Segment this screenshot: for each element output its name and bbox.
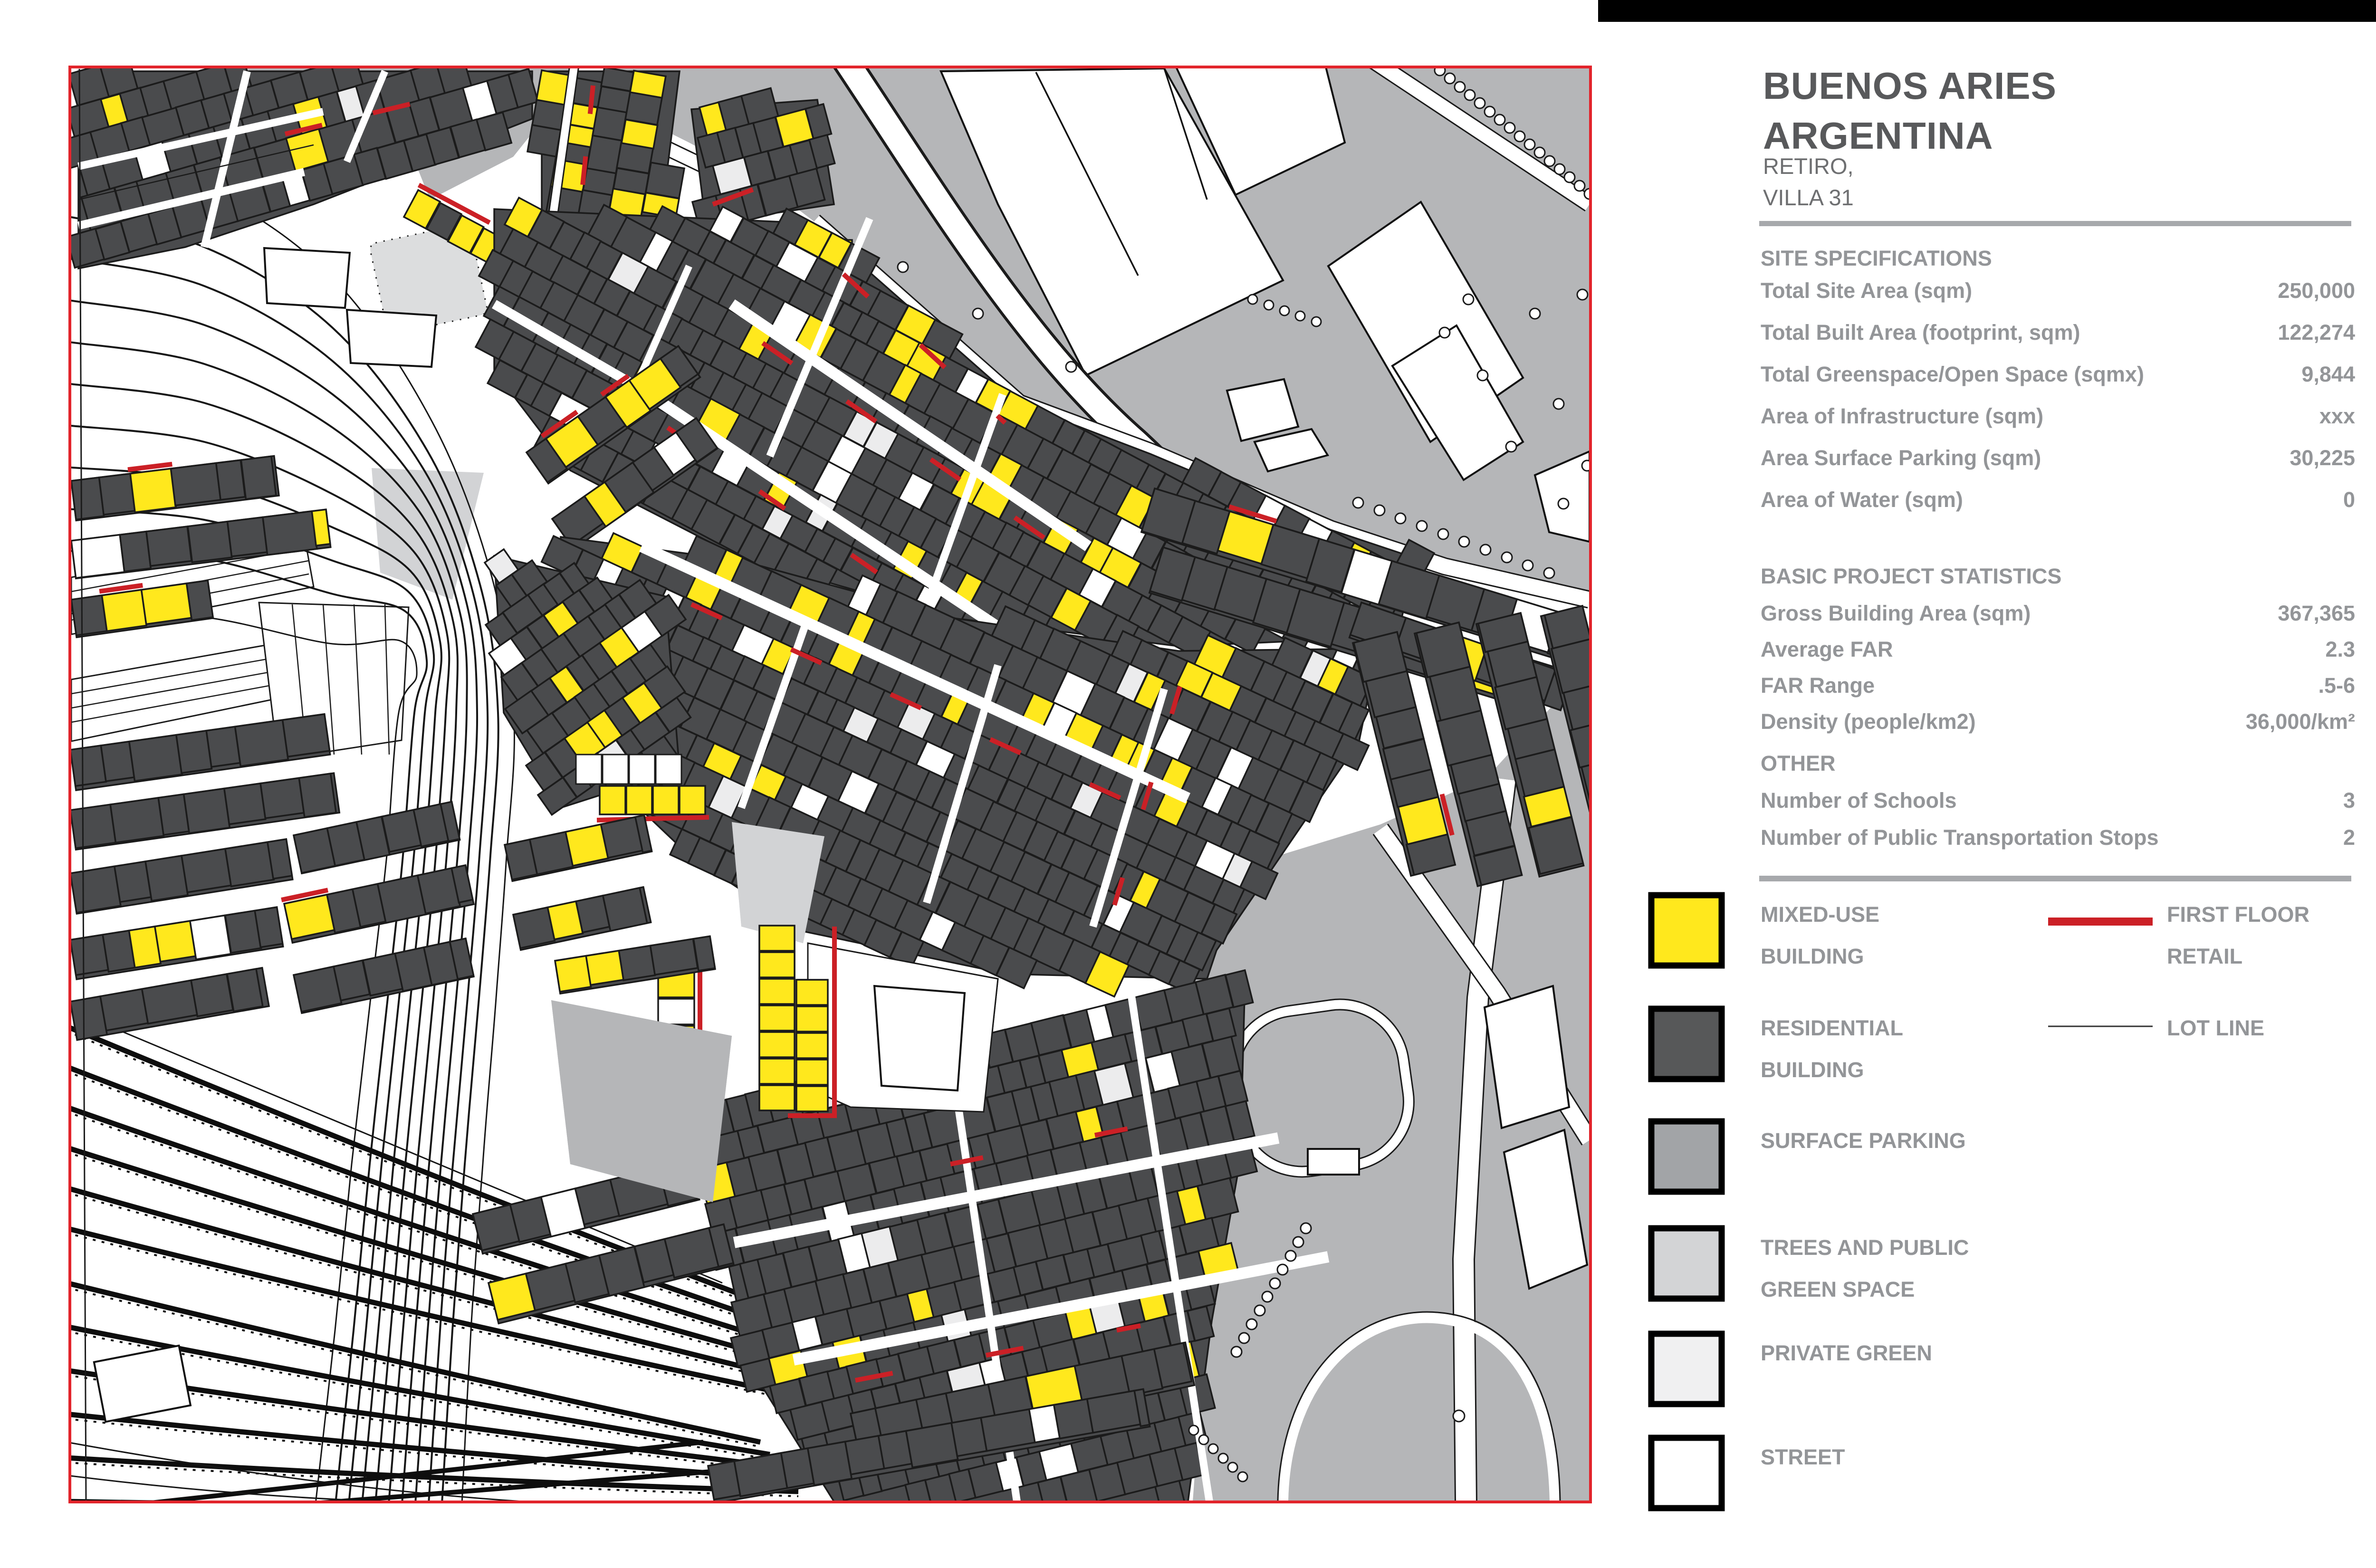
- svg-text:MIXED-USE: MIXED-USE: [1761, 902, 1879, 927]
- svg-text:0: 0: [2343, 488, 2355, 512]
- svg-text:Density (people/km2): Density (people/km2): [1761, 709, 1976, 734]
- svg-text:Total Greenspace/Open Space (s: Total Greenspace/Open Space (sqmx): [1761, 362, 2144, 386]
- svg-text:.5-6: .5-6: [2318, 673, 2355, 698]
- svg-text:367,365: 367,365: [2278, 601, 2355, 625]
- svg-text:Area Surface Parking (sqm): Area Surface Parking (sqm): [1761, 446, 2041, 470]
- svg-text:VILLA 31: VILLA 31: [1763, 185, 1854, 210]
- svg-text:xxx: xxx: [2319, 404, 2355, 428]
- svg-text:TREES AND PUBLIC: TREES AND PUBLIC: [1761, 1235, 1969, 1260]
- svg-text:Total Site Area (sqm): Total Site Area (sqm): [1761, 278, 1972, 303]
- svg-text:BUILDING: BUILDING: [1761, 1058, 1864, 1082]
- svg-text:SURFACE PARKING: SURFACE PARKING: [1761, 1128, 1966, 1153]
- svg-text:RESIDENTIAL: RESIDENTIAL: [1761, 1016, 1903, 1040]
- svg-text:122,274: 122,274: [2278, 320, 2355, 344]
- svg-text:Area of Infrastructure (sqm): Area of Infrastructure (sqm): [1761, 404, 2043, 428]
- svg-text:FIRST FLOOR: FIRST FLOOR: [2167, 902, 2309, 927]
- svg-text:2: 2: [2343, 825, 2355, 850]
- svg-text:SITE SPECIFICATIONS: SITE SPECIFICATIONS: [1761, 246, 1992, 270]
- svg-text:Area of Water (sqm): Area of Water (sqm): [1761, 488, 1963, 512]
- svg-text:Average FAR: Average FAR: [1761, 637, 1893, 661]
- svg-text:ARGENTINA: ARGENTINA: [1763, 115, 1993, 157]
- svg-text:PRIVATE GREEN: PRIVATE GREEN: [1761, 1341, 1932, 1365]
- svg-text:RETIRO,: RETIRO,: [1763, 153, 1854, 179]
- svg-text:Gross Building Area (sqm): Gross Building Area (sqm): [1761, 601, 2031, 625]
- svg-text:BUILDING: BUILDING: [1761, 944, 1864, 968]
- svg-text:2.3: 2.3: [2325, 637, 2355, 661]
- svg-text:250,000: 250,000: [2278, 278, 2355, 303]
- svg-text:Total Built Area (footprint, s: Total Built Area (footprint, sqm): [1761, 320, 2080, 344]
- svg-text:3: 3: [2343, 788, 2355, 813]
- svg-text:STREET: STREET: [1761, 1445, 1845, 1469]
- svg-text:FAR Range: FAR Range: [1761, 673, 1875, 698]
- svg-text:OTHER: OTHER: [1761, 751, 1836, 775]
- svg-text:LOT LINE: LOT LINE: [2167, 1016, 2264, 1040]
- svg-text:BUENOS ARIES: BUENOS ARIES: [1763, 65, 2057, 107]
- svg-text:Number of Schools: Number of Schools: [1761, 788, 1957, 813]
- svg-text:30,225: 30,225: [2290, 446, 2355, 470]
- svg-text:BASIC PROJECT STATISTICS: BASIC PROJECT STATISTICS: [1761, 564, 2061, 588]
- svg-text:Number of Public Transportatio: Number of Public Transportation Stops: [1761, 825, 2159, 850]
- svg-text:RETAIL: RETAIL: [2167, 944, 2242, 968]
- svg-text:36,000/km²: 36,000/km²: [2246, 709, 2355, 734]
- svg-text:9,844: 9,844: [2301, 362, 2355, 386]
- svg-text:GREEN SPACE: GREEN SPACE: [1761, 1277, 1915, 1301]
